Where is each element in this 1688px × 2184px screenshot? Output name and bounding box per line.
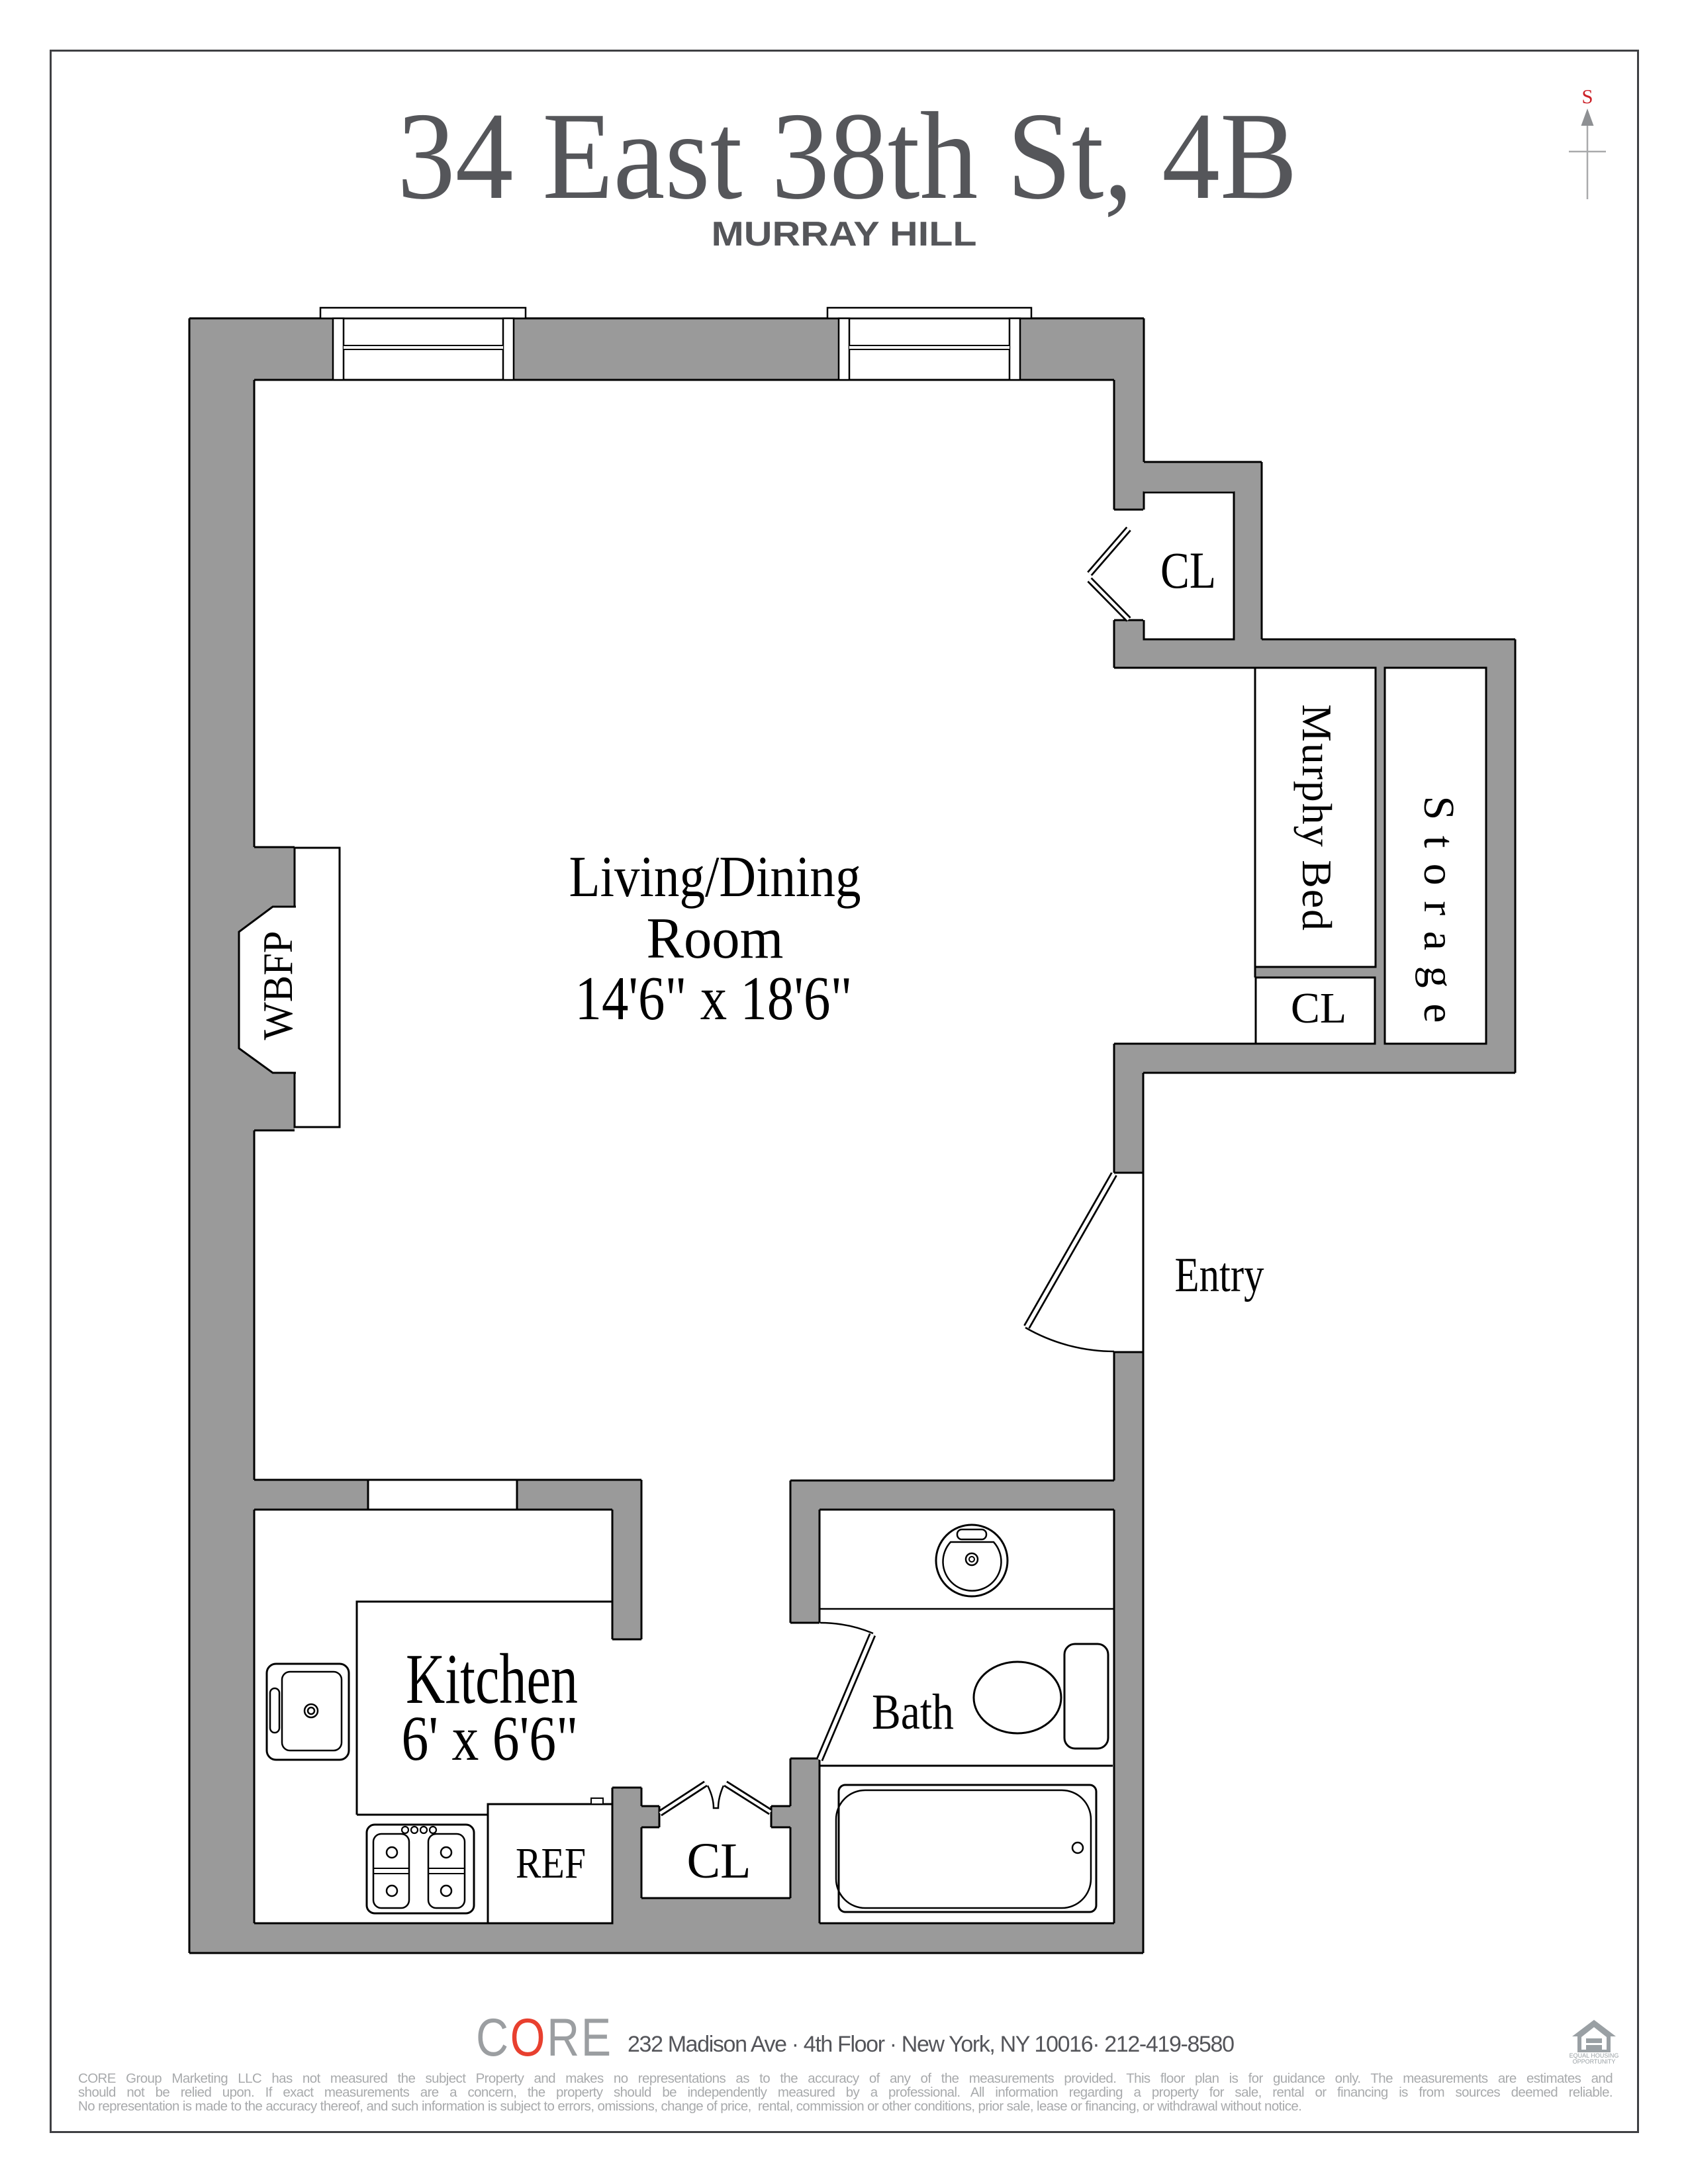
svg-text:WBFP: WBFP [254, 931, 301, 1040]
svg-text:CL: CL [1160, 541, 1216, 599]
svg-text:Murphy Bed: Murphy Bed [1293, 704, 1340, 931]
svg-text:14'6" x 18'6": 14'6" x 18'6" [575, 964, 853, 1033]
svg-text:CL: CL [1291, 984, 1346, 1032]
svg-text:6' x 6'6": 6' x 6'6" [402, 1703, 579, 1774]
svg-text:232 Madison Ave · 4th Floor ·: 232 Madison Ave · 4th Floor · New York, … [628, 2032, 1235, 2057]
svg-text:Living/Dining: Living/Dining [569, 845, 861, 909]
svg-text:Bath: Bath [872, 1684, 954, 1740]
svg-text:Room: Room [647, 907, 784, 971]
svg-text:34 East 38th St, 4B: 34 East 38th St, 4B [397, 87, 1297, 225]
svg-text:REF: REF [516, 1839, 586, 1888]
svg-text:CORE: CORE [476, 2007, 613, 2067]
svg-text:S: S [1581, 85, 1593, 108]
svg-text:Entry: Entry [1175, 1248, 1264, 1302]
svg-text:OPPORTUNITY: OPPORTUNITY [1573, 2058, 1616, 2065]
svg-text:MURRAY HILL: MURRAY HILL [712, 215, 977, 253]
svg-text:CL: CL [686, 1833, 751, 1889]
